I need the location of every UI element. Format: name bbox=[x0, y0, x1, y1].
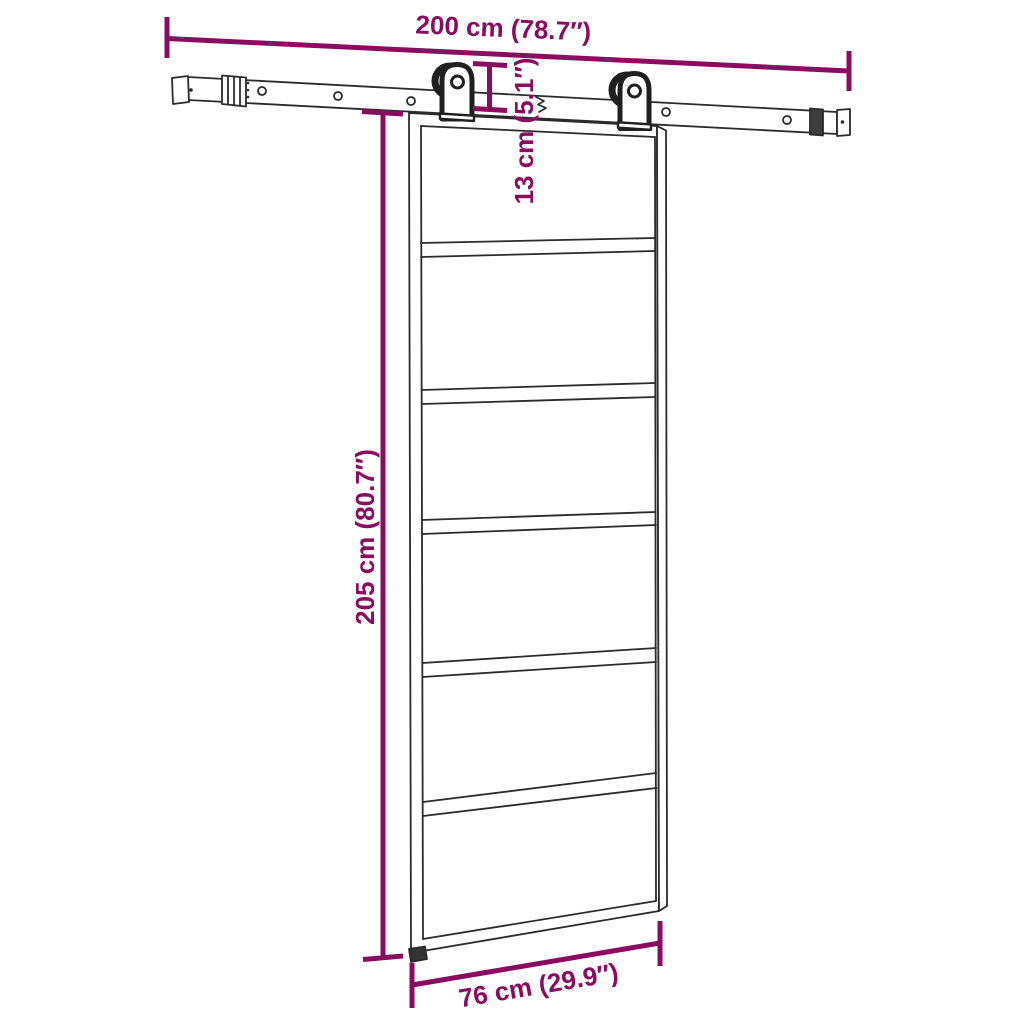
mounting-hole bbox=[407, 97, 415, 105]
door-side-depth-edge bbox=[657, 126, 667, 911]
rail-connector-left bbox=[222, 76, 249, 107]
dim-line bbox=[167, 39, 849, 72]
rail-width-label: 200 cm (78.7″) bbox=[415, 9, 592, 46]
hanger-drop-label: 13 cm (5.1″) bbox=[509, 58, 539, 205]
rail-end-screw-left bbox=[189, 88, 193, 92]
left-hanger bbox=[435, 65, 474, 122]
mounting-hole bbox=[334, 92, 342, 100]
door bbox=[409, 113, 667, 962]
dim-cap bbox=[473, 109, 507, 111]
mounting-hole bbox=[258, 87, 266, 95]
axle-bolt-right bbox=[629, 85, 641, 97]
sliding-door-dimension-diagram: 200 cm (78.7″) 13 cm (5.1″) 205 cm (80.7… bbox=[0, 0, 1024, 1024]
hanger-strap-left bbox=[442, 65, 472, 120]
dim-cap bbox=[363, 956, 403, 960]
mounting-hole bbox=[783, 116, 791, 124]
door-height-label: 205 cm (80.7″) bbox=[350, 449, 380, 625]
dim-cap bbox=[473, 64, 507, 66]
door-floor-guide bbox=[409, 947, 427, 963]
hanger-strap-right bbox=[620, 74, 649, 129]
axle-bolt-left bbox=[452, 76, 464, 88]
right-hanger bbox=[612, 74, 651, 130]
hanger-foot-left bbox=[440, 114, 474, 122]
mounting-hole bbox=[662, 108, 670, 116]
rail-connector-right bbox=[810, 109, 823, 136]
dim-cap bbox=[362, 112, 403, 115]
rail-end-screw-right bbox=[841, 120, 845, 124]
hanger-foot-right bbox=[618, 122, 651, 130]
diagram-canvas: 200 cm (78.7″) 13 cm (5.1″) 205 cm (80.7… bbox=[0, 0, 1024, 1024]
rail-end-cap-left bbox=[172, 76, 189, 104]
